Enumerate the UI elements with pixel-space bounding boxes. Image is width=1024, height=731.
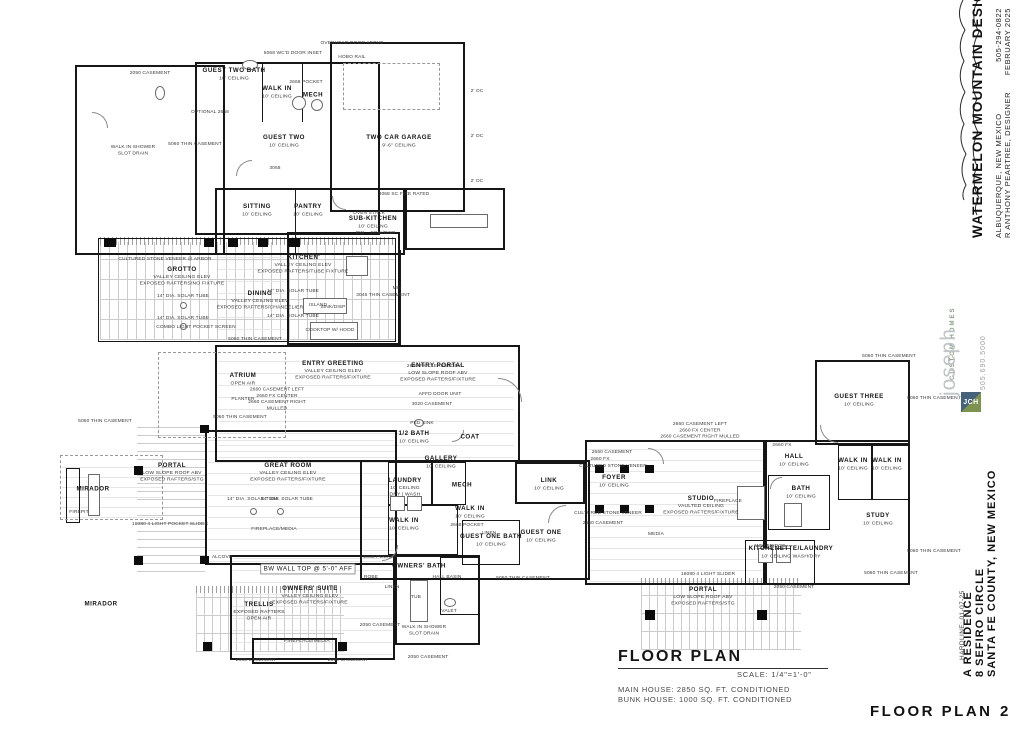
label-subtext: LOW SLOPE ROOF ABV EXPOSED RAFTERS/STG	[671, 594, 735, 607]
label-text: SINK/DISP	[320, 304, 345, 310]
room-label: TWO CAR GARAGE9'-6" CEILING	[366, 133, 431, 148]
room-label: GUEST TWO BATH10' CEILING	[203, 66, 266, 81]
room-label: GREAT ROOMVALLEY CEILING ELEV EXPOSED RA…	[250, 461, 325, 483]
stone-pier	[200, 556, 209, 564]
note-label: 3068 SC FIRE RATED	[379, 191, 430, 197]
room-label: WALK IN10' CEILING	[872, 456, 902, 471]
label-text: 3046 THIN CASEMENT	[356, 292, 410, 298]
label-subtext: LOW SLOPE ROOF ABV EXPOSED RAFTERS/FIXTU…	[400, 370, 475, 383]
label-text: GALLERY	[425, 454, 458, 462]
label-text: ATRIUM	[230, 371, 257, 379]
label-text: BATH	[792, 484, 811, 492]
label-subtext: VALLEY CEILING ELEV EXPOSED RAFTERS/TUBE…	[258, 262, 349, 275]
note-label: BW WALL TOP @ 5'-0" AFF	[260, 564, 355, 575]
label-text: BW WALL TOP @ 5'-0" AFF	[260, 564, 355, 575]
label-text: 2050 CASEMENT	[774, 584, 815, 590]
label-text: 5060 THIN CASEMENT	[228, 336, 282, 342]
fixture	[430, 214, 488, 228]
label-text: 5060 THIN CASEMENT	[864, 570, 918, 576]
note-label: 2050 CASEMENT	[408, 654, 449, 660]
label-text: 5060 THIN CASEMENT	[907, 548, 961, 554]
label-text: VALET	[441, 608, 457, 614]
fixture	[155, 86, 165, 100]
project-location: SANTA FE COUNTY, NEW MEXICO	[986, 467, 998, 677]
label-text: ENTRY GREETING	[302, 359, 364, 367]
room-label: PORTALLOW SLOPE ROOF ABV EXPOSED RAFTERS…	[671, 585, 735, 607]
note-label: 5060 THIN CASEMENT	[78, 418, 132, 424]
room-label: SITTING10' CEILING	[242, 202, 272, 217]
label-text: FOYER	[602, 473, 626, 481]
label-text: 2050 CASEMENT	[408, 654, 449, 660]
label-text: 3020 CASEMENT	[412, 401, 453, 407]
label-text: COMBO LIGHT POCKET SCREEN	[156, 324, 235, 330]
note-label: 3046 THIN CASEMENT	[356, 292, 410, 298]
label-text: TWO CAR GARAGE	[366, 133, 431, 141]
label-text: DW	[356, 230, 364, 236]
label-text: MECH	[452, 481, 472, 489]
note-label: CULTURED STONE VENEER	[574, 510, 642, 516]
note-label: 14" DIA. SOLAR TUBE	[267, 288, 319, 294]
label-subtext: 10' CEILING	[358, 223, 388, 229]
room-label: GUEST THREE10' CEILING	[834, 392, 884, 407]
note-label: 2668 POCKET	[363, 554, 396, 560]
label-text: COAT	[460, 433, 479, 441]
note-label: 2050 CASEMENT	[130, 70, 171, 76]
label-text: STUDIO	[688, 494, 714, 502]
label-subtext: 10' CEILING	[242, 211, 272, 217]
note-label: 2660 CASEMENT	[592, 449, 633, 455]
label-text: HOBO RAIL	[338, 54, 365, 60]
label-text: 14" DIA. SOLAR TUBE	[157, 315, 209, 321]
label-text: 2' OC	[471, 178, 484, 184]
label-subtext: 10' CEILING	[786, 493, 816, 499]
room-label: STUDY10' CEILING	[863, 511, 893, 526]
label-text: CULTURED STONE VENEER	[574, 510, 642, 516]
label-subtext: LOW SLOPE ROOF ABV EXPOSED RAFTERS/STG	[140, 470, 204, 483]
label-text: 5060 THIN CASEMENT	[496, 575, 550, 581]
room-label: BATH10' CEILING	[786, 484, 816, 499]
note-label: MINI FRIDGE	[754, 543, 785, 549]
firm-name: WATERMELON MOUNTAIN DESIGN WORKS	[967, 8, 985, 238]
note-label: REFRIG	[301, 252, 320, 258]
note-label: 2050 CASEMENT	[360, 622, 401, 628]
note-label: LINEN	[385, 584, 400, 590]
label-text: FIREPLACE	[714, 498, 742, 504]
label-text: AFFD DOOR UNIT	[419, 391, 462, 397]
label-subtext: 10' CEILING	[863, 520, 893, 526]
label-subtext: 10' CEILING WASH/DRY	[761, 553, 820, 559]
project-address: 8 SEFIRO CIRCLE	[974, 563, 986, 677]
note-label: WALK IN SHOWER SLOT DRAIN	[111, 144, 156, 157]
note-label: SINK/DISP	[370, 230, 395, 236]
note-label: 2660 CASEMENT	[583, 520, 624, 526]
note-label: FIREPLACE/MEDIA	[284, 638, 329, 644]
label-text: 5060 THIN CASEMENT	[168, 141, 222, 147]
note-label: 5060 THIN CASEMENT	[496, 575, 550, 581]
label-text: OVEN STACK	[353, 210, 385, 216]
label-text: GROTTO	[167, 265, 196, 273]
label-text: CULTURED STONE VENEER @ ARBOR	[118, 256, 211, 262]
note-label: VALET	[441, 608, 457, 614]
room-label: HALL10' CEILING	[779, 452, 809, 467]
label-subtext: 10' CEILING	[476, 541, 506, 547]
room-label: WALK IN10' CEILING	[262, 84, 292, 99]
designer-name: R ANTHONY PEARTREE, DESIGNER	[1003, 92, 1012, 238]
note-label: 14" DIA. SOLAR TUBE	[261, 496, 313, 502]
label-text: WALK IN	[389, 516, 419, 524]
label-text: OWNERS' SUITE	[282, 584, 338, 592]
label-text: 14" DIA. SOLAR TUBE	[157, 293, 209, 299]
room-label: OWNERS' BATH	[392, 562, 446, 570]
label-text: ALCOVE	[212, 554, 232, 560]
fixture	[180, 302, 187, 309]
label-text: 2660 FX	[590, 456, 609, 462]
note-label: 2' OC	[471, 133, 484, 139]
room-label: FOYER10' CEILING	[599, 473, 629, 488]
drawing-scale: SCALE: 1/4"=1'-0"	[737, 670, 812, 679]
label-subtext: 10' CEILING	[426, 463, 456, 469]
note-label: 2668 POCKET	[450, 522, 483, 528]
room-label: ENTRY GREETINGVALLEY CEILING ELEV EXPOSE…	[295, 359, 370, 381]
note-label: DW	[356, 230, 364, 236]
stone-pier	[258, 238, 268, 247]
fixture	[277, 508, 284, 515]
label-text: 2668 POCKET	[289, 79, 322, 85]
label-text: TUB	[411, 594, 421, 600]
label-subtext: 10' CEILING	[838, 465, 868, 471]
label-text: 2' OC	[471, 133, 484, 139]
label-text: 2668 POCKET	[363, 554, 396, 560]
label-text: MIRADOR	[84, 600, 117, 608]
note-label: 5060 THIN CASEMENT	[228, 336, 282, 342]
fixture	[311, 99, 323, 111]
label-text: 2' OC	[471, 88, 484, 94]
label-subtext: 10' CEILING	[262, 93, 292, 99]
label-text: LINEN	[482, 530, 497, 536]
sheet-number: 2	[1000, 703, 1008, 720]
room-label: WALK IN10' CEILING	[455, 504, 485, 519]
label-text: FIREPLACE/MEDIA	[251, 526, 296, 532]
fixture	[410, 580, 428, 622]
note-label: 3068	[269, 165, 280, 171]
label-text: MIRADOR	[76, 485, 109, 493]
note-label: 2660 FX	[590, 456, 609, 462]
room-label: ATRIUMOPEN AIR	[230, 371, 257, 386]
note-label: ALCOVE	[212, 554, 232, 560]
note-label: OPTIONAL 2668	[191, 109, 229, 115]
room-label: GROTTOVALLEY CEILING ELEV EXPOSED RAFTER…	[140, 265, 225, 287]
room-label: COAT	[460, 433, 479, 441]
note-label: TUB	[411, 594, 421, 600]
label-text: GUEST THREE	[834, 392, 884, 400]
room-label: TRELLISEXPOSED RAFTERS OPEN AIR	[233, 600, 284, 622]
label-text: 2668 POCKET	[450, 522, 483, 528]
note-label: 2668 POCKET	[289, 79, 322, 85]
fixture	[444, 598, 456, 607]
label-text: 16080 4 LIGHT SLIDER	[681, 571, 735, 577]
stone-pier	[203, 642, 212, 651]
note-label: OVEN STACK	[353, 210, 385, 216]
label-text: 16080 4 LIGHT POCKET SLIDER	[132, 521, 208, 527]
room-label: PORTALLOW SLOPE ROOF ABV EXPOSED RAFTERS…	[140, 461, 204, 483]
fixture	[88, 474, 100, 516]
label-text: MEDIA	[648, 531, 664, 537]
room-label: GUEST ONE10' CEILING	[521, 528, 562, 543]
label-subtext: 9'-6" CEILING	[382, 142, 416, 148]
label-text: 14" DIA. SOLAR TUBE	[267, 313, 319, 319]
label-text: LAUNDRY	[388, 476, 422, 484]
wall-outline	[343, 63, 440, 110]
note-label: WALK IN SHOWER SLOT DRAIN	[402, 624, 447, 637]
label-text: 5060 THIN CASEMENT	[78, 418, 132, 424]
note-label: 2660 CASEMENT LEFT 2660 FX CENTER 2660 C…	[248, 386, 306, 411]
label-text: 2660 FX	[772, 442, 791, 448]
note-label: 5068 WC'D DOOR INSET	[264, 50, 322, 56]
sheet-title: FLOOR PLAN	[870, 703, 993, 720]
label-text: LINK	[541, 476, 557, 484]
note-label: AFFD DOOR UNIT	[419, 391, 462, 397]
stone-pier	[288, 238, 300, 247]
label-subtext: 10' CEILING DRY | WASH	[390, 485, 421, 498]
note-label: FIREPLACE/MEDIA	[251, 526, 296, 532]
note-label: 16080 4 LIGHT POCKET SLIDER	[132, 521, 208, 527]
wall-outline	[872, 445, 910, 500]
note-label: 5060 THIN CASEMENT	[168, 141, 222, 147]
firm-phone: 505-294-0822	[994, 8, 1003, 62]
label-text: PORTAL	[689, 585, 717, 593]
drawing-title: FLOOR PLAN	[618, 648, 828, 669]
label-text: SITTING	[243, 202, 271, 210]
label-text: 2660 CASEMENT LEFT 2660 FX CENTER 2660 C…	[248, 386, 306, 411]
firm-designer-line: R ANTHONY PEARTREE, DESIGNER FEBRUARY 20…	[1003, 8, 1012, 238]
room-label: GUEST TWO10' CEILING	[263, 133, 305, 148]
note-label: 14" DIA. SOLAR TUBE	[157, 315, 209, 321]
room-label: 1/2 BATH10' CEILING	[398, 429, 429, 444]
label-text: FIREPLACE/MEDIA	[284, 638, 329, 644]
note-label: HALL BASIN	[433, 574, 462, 580]
label-subtext: 10' CEILING	[293, 211, 323, 217]
note-label: 2660 CASEMENT LEFT 2660 FX CENTER 2660 C…	[660, 421, 739, 440]
label-text: PED SINK	[410, 420, 434, 426]
stone-pier	[757, 610, 767, 620]
note-label: 5060 THIN CASEMENT	[864, 570, 918, 576]
label-text: WALK IN	[838, 456, 868, 464]
label-subtext: 10' CEILING	[534, 485, 564, 491]
label-subtext: 10' CEILING	[389, 525, 419, 531]
label-text: WALK IN	[872, 456, 902, 464]
note-label: 2660 CASEMENT	[236, 657, 277, 663]
fixture	[346, 256, 368, 276]
label-text: 5060 THIN CASEMENT	[213, 414, 267, 420]
room-label: MECH	[452, 481, 472, 489]
label-subtext: 10' CEILING	[219, 75, 249, 81]
stone-pier	[204, 238, 214, 247]
label-text: 3068	[269, 165, 280, 171]
label-text: 5060 THIN CASEMENT	[862, 353, 916, 359]
project-name: A RESIDENCE	[962, 583, 974, 677]
label-text: SINK/DISP	[370, 230, 395, 236]
note-label: COMBO LIGHT POCKET SCREEN	[156, 324, 235, 330]
note-label: OVERHEAD DOOR ABOVE	[320, 40, 383, 46]
label-text: 5068 WC'D DOOR INSET	[264, 50, 322, 56]
label-text: MINI FRIDGE	[754, 543, 785, 549]
label-text: 14" DIA. SOLAR TUBE	[267, 288, 319, 294]
note-label: 5060 THIN CASEMENT	[213, 414, 267, 420]
label-subtext: 10' CEILING	[526, 537, 556, 543]
label-subtext: 10' CEILING	[399, 438, 429, 444]
note-label: 2050 CASEMENT	[774, 584, 815, 590]
note-label: COOKTOP W/ HOOD	[306, 327, 355, 333]
label-text: WALK IN SHOWER SLOT DRAIN	[402, 624, 447, 637]
label-text: 2050 CASEMENT	[360, 622, 401, 628]
room-label: MECH	[303, 91, 323, 99]
label-text: 3068 SC FIRE RATED	[379, 191, 430, 197]
note-label: 2660 CASEMENT	[328, 657, 369, 663]
label-text: 2660 CASEMENT LEFT 2660 FX CENTER 2660 C…	[660, 421, 739, 440]
label-text: CULTURED STONE VENEER	[579, 463, 647, 469]
fixture	[784, 503, 802, 527]
fixture	[390, 496, 405, 511]
label-text: 2660 CASEMENT	[592, 449, 633, 455]
note-label: CULTURED STONE VENEER @ ARBOR	[118, 256, 211, 262]
label-text: HALL	[785, 452, 804, 460]
note-label: LINEN	[482, 530, 497, 536]
note-label: 5060 THIN CASEMENT	[862, 353, 916, 359]
room-label: MIRADOR	[76, 485, 109, 493]
note-label: MW	[393, 285, 402, 291]
stone-pier	[645, 505, 654, 513]
label-text: GREAT ROOM	[264, 461, 311, 469]
label-text: GUEST ONE	[521, 528, 562, 536]
label-subtext: VALLEY CEILING ELEV EXPOSED RAFTERS/CHAN…	[217, 298, 304, 311]
label-text: MW	[393, 285, 402, 291]
logo-phone: 505.690.5000	[979, 320, 987, 390]
label-subtext: 10' CEILING	[455, 513, 485, 519]
label-text: WALK IN	[455, 504, 485, 512]
label-text: GUEST TWO	[263, 133, 305, 141]
label-subtext: EXPOSED RAFTERS OPEN AIR	[233, 609, 284, 622]
drawing-date: FEBRUARY 2025	[1003, 8, 1012, 75]
stone-pier	[200, 425, 209, 433]
note-label: 2660 FX	[772, 442, 791, 448]
label-text: STUDY	[866, 511, 890, 519]
label-subtext: 10' CEILING	[844, 401, 874, 407]
note-label: MEDIA	[648, 531, 664, 537]
label-subtext: VALLEY CEILING ELEV EXPOSED RAFTERS/FIXT…	[295, 368, 370, 381]
label-subtext: 10' CEILING	[779, 461, 809, 467]
room-label: WALK IN10' CEILING	[389, 516, 419, 531]
label-text: FIREPIT	[69, 509, 88, 515]
fixture	[407, 496, 422, 511]
label-text: 14" DIA. SOLAR TUBE	[261, 496, 313, 502]
note-label: 3020 CASEMENT	[412, 401, 453, 407]
note-label: PED SINK	[410, 420, 434, 426]
label-text: WALK IN SHOWER SLOT DRAIN	[111, 144, 156, 157]
note-label: 2' OC	[471, 178, 484, 184]
room-label: GALLERY10' CEILING	[425, 454, 458, 469]
stone-pier	[134, 556, 143, 565]
area-note-bunk-house: BUNK HOUSE: 1000 SQ. FT. CONDITIONED	[618, 694, 792, 705]
label-subtext: VAULTED CEILING EXPOSED RAFTERS/FIXTURE	[663, 503, 738, 516]
fixture	[250, 508, 257, 515]
note-label: 16080 4 LIGHT SLIDER	[681, 571, 735, 577]
firm-location: ALBUQUERQUE, NEW MEXICO	[994, 113, 1003, 238]
note-label: CULTURED STONE VENEER	[579, 463, 647, 469]
label-text: OWNERS' BATH	[392, 562, 446, 570]
note-label: 5060 THIN CASEMENT	[907, 548, 961, 554]
note-label: 2660 FX CLERESTORY	[407, 363, 461, 369]
label-text: 2050 CASEMENT	[130, 70, 171, 76]
note-label: SINK/DISP	[320, 304, 345, 310]
label-text: 2660 CASEMENT	[328, 657, 369, 663]
label-text: TRELLIS	[244, 600, 273, 608]
label-subtext: 10' CEILING	[599, 482, 629, 488]
firm-contact-line: ALBUQUERQUE, NEW MEXICO 505-294-0822	[994, 8, 1003, 238]
label-text: REFRIG	[301, 252, 320, 258]
logo-monogram: JCH	[961, 392, 981, 412]
room-label: SUB-KITCHEN10' CEILING	[349, 214, 397, 229]
note-label: ROBE	[364, 574, 378, 580]
label-subtext: VALLEY CEILING ELEV EXPOSED RAFTERS/NO F…	[140, 274, 225, 287]
label-text: 2660 CASEMENT	[236, 657, 277, 663]
note-label: FIREPLACE	[714, 498, 742, 504]
logo-wordmark: joseph	[937, 306, 961, 396]
drawing-sheet: GUEST TWO BATH10' CEILINGWALK IN10' CEIL…	[0, 0, 1024, 731]
label-subtext: 10' CEILING	[872, 465, 902, 471]
label-text: OPTIONAL 2668	[191, 109, 229, 115]
room-label: MIRADOR	[84, 600, 117, 608]
label-text: PORTAL	[158, 461, 186, 469]
label-text: PANTRY	[294, 202, 322, 210]
label-text: HALL BASIN	[433, 574, 462, 580]
label-subtext: VALLEY CEILING ELEV EXPOSED RAFTERS/FIXT…	[250, 470, 325, 483]
floor-plan-drawing: GUEST TWO BATH10' CEILINGWALK IN10' CEIL…	[0, 0, 1024, 731]
note-label: 14" DIA. SOLAR TUBE	[157, 293, 209, 299]
label-text: WALK IN	[262, 84, 292, 92]
room-label: LAUNDRY10' CEILING DRY | WASH	[388, 476, 422, 498]
stone-pier	[228, 238, 238, 247]
label-text: COOKTOP W/ HOOD	[306, 327, 355, 333]
note-label: 14" DIA. SOLAR TUBE	[267, 313, 319, 319]
note-label: FIREPIT	[69, 509, 88, 515]
room-label: LINK10' CEILING	[534, 476, 564, 491]
label-text: 2660 FX CLERESTORY	[407, 363, 461, 369]
label-text: GUEST TWO BATH	[203, 66, 266, 74]
label-text: LINEN	[385, 584, 400, 590]
label-text: ROBE	[364, 574, 378, 580]
label-text: 2660 CASEMENT	[583, 520, 624, 526]
label-text: OVERHEAD DOOR ABOVE	[320, 40, 383, 46]
room-label: PANTRY10' CEILING	[293, 202, 323, 217]
label-text: MECH	[303, 91, 323, 99]
label-subtext: 10' CEILING	[269, 142, 299, 148]
stone-pier	[338, 642, 347, 651]
wall-outline	[838, 445, 872, 500]
label-text: 1/2 BATH	[398, 429, 429, 437]
note-label: 2' OC	[471, 88, 484, 94]
stone-pier	[104, 238, 116, 247]
room-label: WALK IN10' CEILING	[838, 456, 868, 471]
stone-pier	[645, 610, 655, 620]
note-label: HOBO RAIL	[338, 54, 365, 60]
